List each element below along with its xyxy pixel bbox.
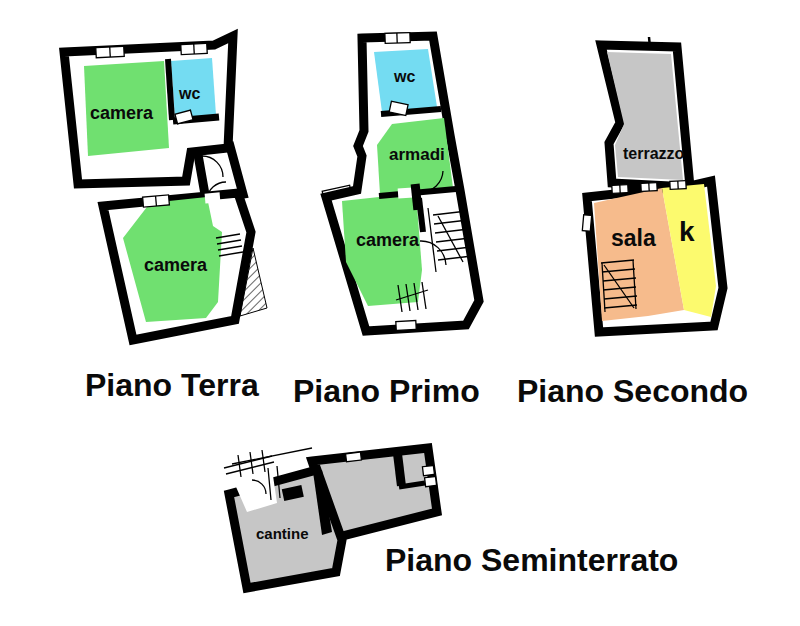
- floor-plans-canvas: camera wc camera: [0, 0, 800, 626]
- title-piano-seminterrato: Piano Seminterrato: [385, 542, 678, 578]
- title-piano-primo: Piano Primo: [293, 373, 480, 409]
- room-label-camera-lower: camera: [144, 255, 208, 275]
- title-piano-terra: Piano Terra: [85, 367, 259, 403]
- room-label-armadi: armadi: [389, 145, 445, 164]
- floorplan-piano-primo: wc armadi camera: [322, 33, 479, 331]
- floorplan-piano-secondo: terrazzo sala k: [582, 37, 723, 332]
- room-label-sala: sala: [611, 225, 656, 251]
- room-label-terrazzo: terrazzo: [623, 145, 685, 162]
- room-label-wc: wc: [393, 68, 415, 85]
- room-label-camera: camera: [356, 230, 420, 250]
- title-piano-secondo: Piano Secondo: [517, 373, 748, 409]
- floor-plan-page: camera wc camera: [0, 0, 800, 626]
- room-label-wc: wc: [178, 85, 200, 102]
- room-label-camera-upper: camera: [90, 103, 154, 123]
- floorplan-piano-terra: camera wc camera: [64, 36, 267, 340]
- room-label-cantine: cantine: [256, 525, 309, 542]
- room-label-k: k: [679, 216, 695, 247]
